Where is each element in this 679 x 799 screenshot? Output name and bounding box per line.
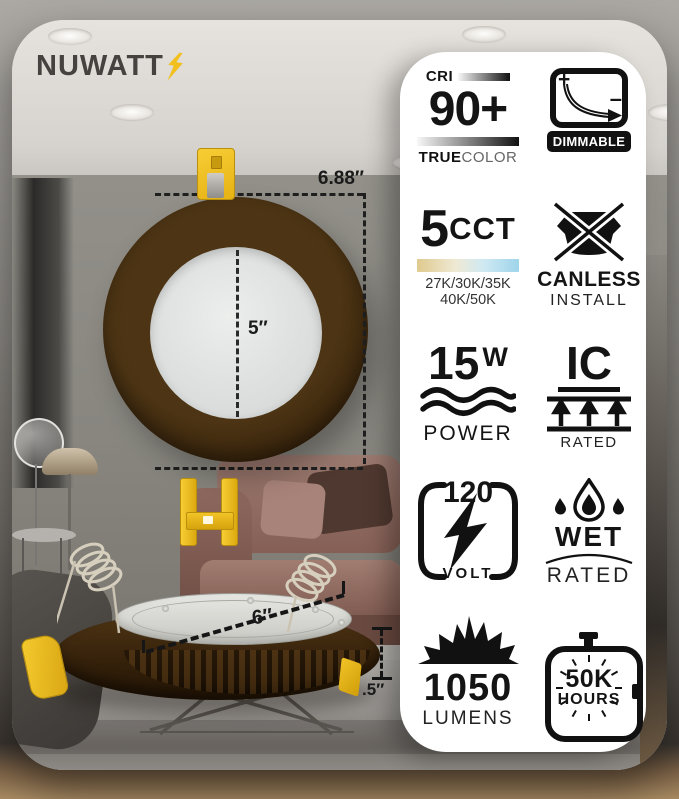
wet-arc: [543, 552, 635, 564]
mounting-wedge-yellow: [338, 657, 361, 697]
badge-cct: 5 CCT 27K/30K/35K 40K/50K: [412, 204, 524, 308]
plus-sign: +: [558, 68, 570, 92]
cct-gradient-bar: [417, 259, 519, 272]
hours-value: 50K: [541, 665, 637, 694]
wet-label: WET: [555, 522, 623, 552]
recessed-light-icon: [462, 26, 506, 42]
cri-gradient-bar: [458, 73, 510, 81]
power-label: POWER: [423, 422, 512, 446]
lamp-stand: [35, 464, 37, 566]
lens-dimension-line: [236, 250, 239, 417]
photo-card: NUWATT 6.88″ 5″: [12, 20, 667, 770]
recessed-light-icon: [110, 104, 154, 120]
power-waves-icon: [420, 386, 516, 420]
ic-value: IC: [558, 340, 620, 392]
minus-sign: –: [610, 86, 622, 112]
truecolor-label: TRUECOLOR: [419, 149, 518, 166]
power-value-row: 15 W: [428, 340, 508, 386]
spring-clip-right: [275, 546, 350, 636]
product-infographic: NUWATT 6.88″ 5″: [0, 0, 679, 799]
hours-timer-icon: 50K HOURS: [541, 632, 637, 734]
volt-value: 120: [414, 476, 522, 510]
badge-dimmable: + – DIMMABLE: [540, 68, 638, 152]
cct-temps-1: 27K/30K/35K: [425, 276, 510, 292]
dimmable-label: DIMMABLE: [547, 131, 631, 152]
sofa-pillow: [260, 479, 327, 539]
clip-notch: [207, 173, 224, 198]
volt-bracket-frame: 120 VOLT: [414, 480, 522, 582]
brand-name: NUWATT: [36, 50, 164, 83]
mounting-clip-bottom: [180, 478, 238, 544]
truecolor-light: COLOR: [462, 149, 518, 166]
brand-logo: NUWATT: [36, 50, 184, 83]
screw: [247, 597, 254, 604]
cri-value: 90+: [429, 85, 507, 135]
lens-diameter-label: 5″: [248, 318, 268, 340]
dimension-tick: [142, 640, 145, 653]
clip-slot: [211, 156, 222, 169]
power-value: 15: [428, 340, 479, 386]
dimension-tick: [342, 581, 345, 594]
wet-rated-label: RATED: [547, 564, 632, 588]
wet-drops-icon: [549, 478, 629, 522]
lumens-burst-icon: [414, 614, 522, 666]
badge-power: 15 W POWER: [412, 340, 524, 446]
width-dimension-line: [363, 193, 366, 464]
overall-width-label: 6.88″: [280, 168, 364, 190]
screw: [162, 605, 169, 612]
power-unit: W: [482, 342, 507, 373]
cct-count: 5: [420, 204, 449, 254]
badge-volt: 120 VOLT: [412, 480, 524, 582]
badge-canless: CANLESS INSTALL: [538, 202, 640, 310]
ic-rated-label: RATED: [560, 434, 617, 451]
badge-cri: CRI 90+ TRUECOLOR: [412, 68, 524, 166]
spring-clip-left: [57, 533, 132, 638]
profile-depth-label: .5″: [362, 680, 384, 700]
lightning-bolt-icon: [163, 51, 186, 84]
canless-label: CANLESS: [537, 268, 641, 292]
hours-label: HOURS: [541, 691, 637, 709]
body-diameter-label: 6″: [251, 605, 275, 631]
volt-label: VOLT: [414, 565, 522, 582]
badge-lumens: 1050 LUMENS: [410, 614, 526, 730]
timer-button-top: [579, 632, 598, 639]
mounting-clip-top: [197, 148, 235, 200]
truecolor-bold: TRUE: [419, 149, 462, 166]
floor-lamp-dome: [42, 448, 98, 475]
lumens-label: LUMENS: [422, 708, 513, 730]
install-label: INSTALL: [550, 292, 628, 310]
depth-dim-line: [380, 630, 383, 677]
cri-gradient-bar: [417, 137, 519, 146]
badge-ic: IC RATED: [538, 340, 640, 451]
can-crossed-icon: [549, 202, 629, 264]
ic-arrows-icon: [545, 396, 633, 432]
feature-panel: CRI 90+ TRUECOLOR + –: [400, 52, 646, 752]
cct-temps-2: 40K/50K: [440, 292, 496, 308]
clip-slot: [203, 516, 213, 524]
cct-value-row: 5 CCT: [420, 204, 516, 254]
lumens-value: 1050: [424, 668, 513, 708]
recessed-light-icon: [48, 28, 92, 44]
dimmable-curve-icon: + –: [550, 68, 628, 128]
badge-wet: WET RATED: [538, 478, 640, 588]
badge-hours: 50K HOURS: [534, 632, 644, 734]
cct-unit: CCT: [449, 211, 516, 247]
